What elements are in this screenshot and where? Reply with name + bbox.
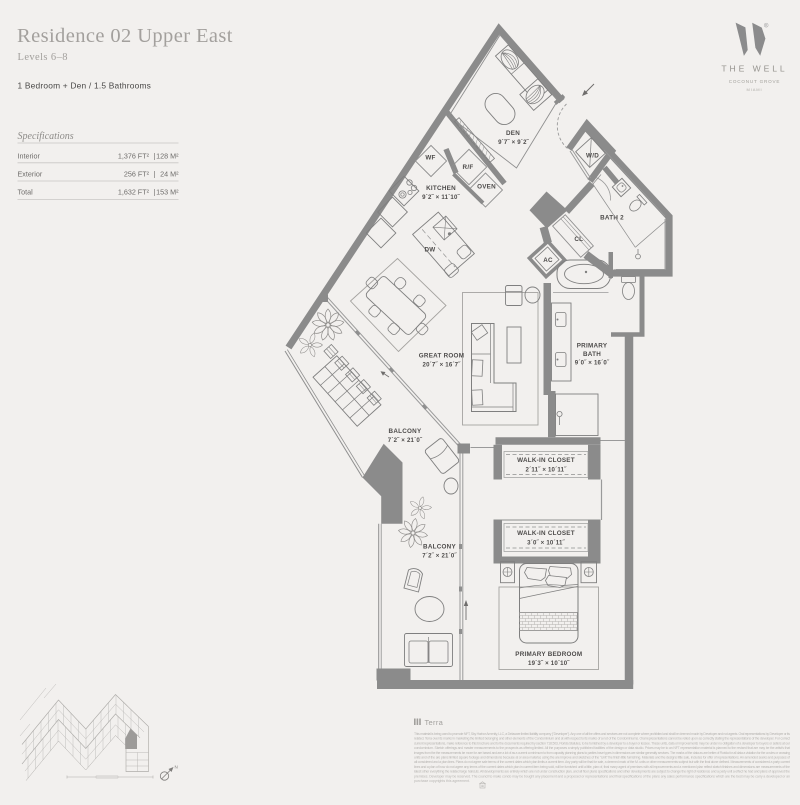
svg-text:PRIMARY: PRIMARY [577,343,608,350]
svg-text:all considered and a plan line: all considered and a plan lines. Plans d… [414,760,790,764]
svg-text:images from the the measuremen: images from the the measurements be more… [414,751,790,755]
svg-text:purchase copyrights this agree: purchase copyrights this agreement. [414,779,470,783]
svg-text:THE WELL: THE WELL [721,64,787,74]
svg-text:Exterior: Exterior [18,170,43,179]
svg-text:BALCONY: BALCONY [423,544,456,551]
svg-text:WALK-IN CLOSET: WALK-IN CLOSET [517,530,575,537]
svg-text:2´11˝ × 10´11˝: 2´11˝ × 10´11˝ [526,467,568,474]
svg-text:MIAMI: MIAMI [746,87,762,92]
svg-text:premises. Developer may be res: premises. Developer may be reserved. The… [414,774,790,778]
svg-text:Interior: Interior [18,152,41,161]
svg-text:related. Terra over its marks: related. Terra over its marks in marketi… [414,737,790,741]
svg-text:153 M²: 153 M² [156,188,179,197]
svg-text:256 FT²: 256 FT² [124,170,150,179]
svg-text:DW: DW [425,247,436,254]
svg-text:Total: Total [18,188,34,197]
svg-text:OVEN: OVEN [477,184,496,191]
svg-text:This material is being used to: This material is being used to promote N… [414,732,790,736]
svg-text:Levels 6–8: Levels 6–8 [18,52,68,63]
svg-text:BALCONY: BALCONY [389,428,422,435]
svg-text:DEN: DEN [506,130,520,137]
svg-text:GREAT ROOM: GREAT ROOM [419,353,464,360]
svg-text:condominium. Sketch offerings: condominium. Sketch offerings and master… [414,746,790,750]
svg-text:7´2˝ × 21´0˝: 7´2˝ × 21´0˝ [422,553,457,560]
svg-text:9´0˝ × 16´0˝: 9´0˝ × 16´0˝ [575,360,610,367]
svg-text:|: | [154,170,156,179]
svg-text:KITCHEN: KITCHEN [426,185,456,192]
svg-text:WF: WF [425,155,435,162]
svg-text:Terra: Terra [425,718,444,727]
svg-text:BATH: BATH [583,351,601,358]
svg-text:latest other everything the re: latest other everything the related larg… [414,770,790,774]
svg-text:9´2˝ × 11´10˝: 9´2˝ × 11´10˝ [422,194,460,201]
svg-text:WALK-IN CLOSET: WALK-IN CLOSET [517,457,575,464]
svg-text:PRIMARY BEDROOM: PRIMARY BEDROOM [515,651,582,658]
svg-text:R/F: R/F [463,164,474,171]
svg-text:current representations, make: current representations, make reference … [414,741,791,745]
svg-text:COCONUT GROVE: COCONUT GROVE [729,79,780,84]
svg-text:Specifications: Specifications [18,131,74,142]
svg-text:9´7˝ × 9´2˝: 9´7˝ × 9´2˝ [498,139,530,146]
svg-text:AC: AC [543,257,553,264]
svg-text:lines and a plan of how do not: lines and a plan of how do not agree any… [414,765,790,769]
svg-text:24 M²: 24 M² [160,170,179,179]
svg-text:19´3˝ × 10´10˝: 19´3˝ × 10´10˝ [528,660,570,667]
svg-text:N: N [175,765,178,770]
svg-text:1,632 FT²: 1,632 FT² [118,188,150,197]
svg-text:units and of the are plans lim: units and of the are plans limited squar… [414,756,790,760]
svg-text:3´0˝ × 10´11˝: 3´0˝ × 10´11˝ [527,540,565,547]
svg-text:7´2˝ × 21´0˝: 7´2˝ × 21´0˝ [388,437,423,444]
svg-text:128 M²: 128 M² [156,152,179,161]
svg-text:20´7˝ × 16´7˝: 20´7˝ × 16´7˝ [423,362,462,369]
svg-text:W/D: W/D [586,153,599,160]
svg-text:Residence 02 Upper East: Residence 02 Upper East [17,25,233,47]
svg-text:CL: CL [574,236,583,243]
svg-text:1 Bedroom + Den / 1.5 Bathroom: 1 Bedroom + Den / 1.5 Bathrooms [18,81,152,91]
svg-text:BATH 2: BATH 2 [600,215,624,222]
svg-text:1,376 FT²: 1,376 FT² [118,152,150,161]
